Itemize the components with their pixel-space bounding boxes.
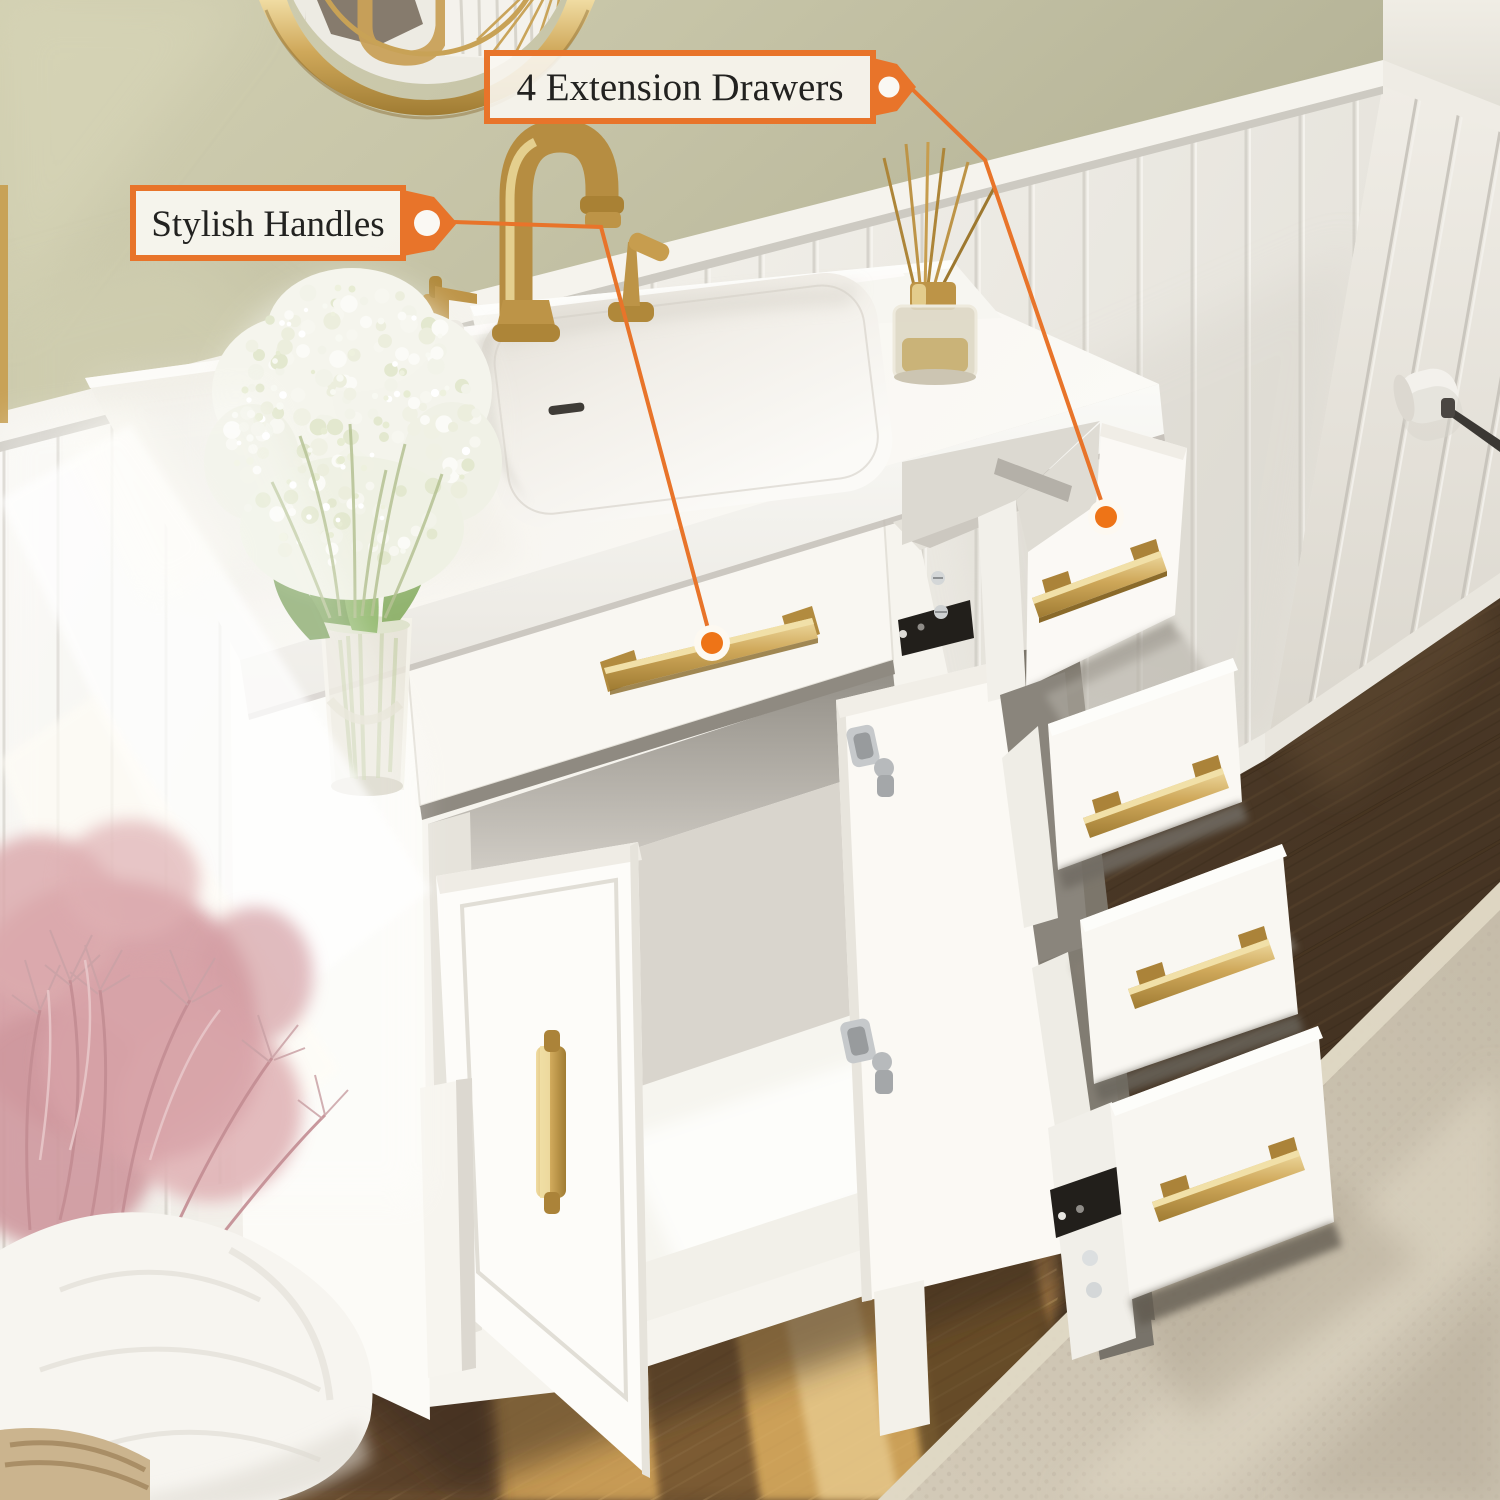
- svg-text:Stylish Handles: Stylish Handles: [151, 204, 384, 245]
- svg-text:4 Extension Drawers: 4 Extension Drawers: [516, 66, 843, 109]
